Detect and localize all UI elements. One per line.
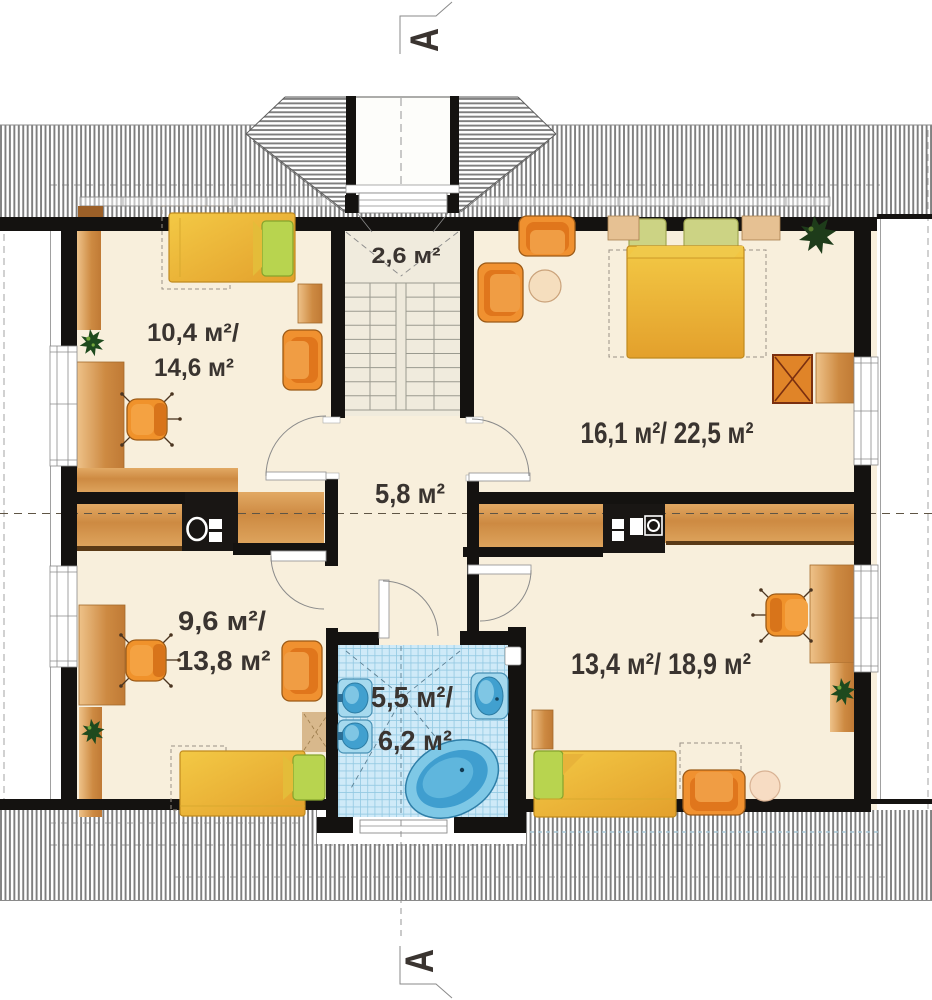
svg-text:14,6 м²: 14,6 м² — [154, 354, 234, 382]
svg-text:6,2 м²: 6,2 м² — [378, 725, 452, 756]
svg-text:2,6 м²: 2,6 м² — [372, 243, 441, 268]
svg-text:13,4 м²/ 18,9 м²: 13,4 м²/ 18,9 м² — [571, 648, 751, 681]
svg-text:16,1 м²/ 22,5 м²: 16,1 м²/ 22,5 м² — [581, 417, 754, 450]
svg-text:5,5 м²/: 5,5 м²/ — [371, 682, 453, 714]
svg-text:5,8 м²: 5,8 м² — [375, 478, 445, 509]
svg-text:13,8 м²: 13,8 м² — [178, 645, 271, 676]
svg-text:10,4 м²/: 10,4 м²/ — [147, 319, 239, 347]
svg-text:A: A — [398, 949, 442, 973]
svg-text:9,6 м²/: 9,6 м²/ — [178, 606, 267, 636]
svg-text:A: A — [403, 28, 447, 52]
